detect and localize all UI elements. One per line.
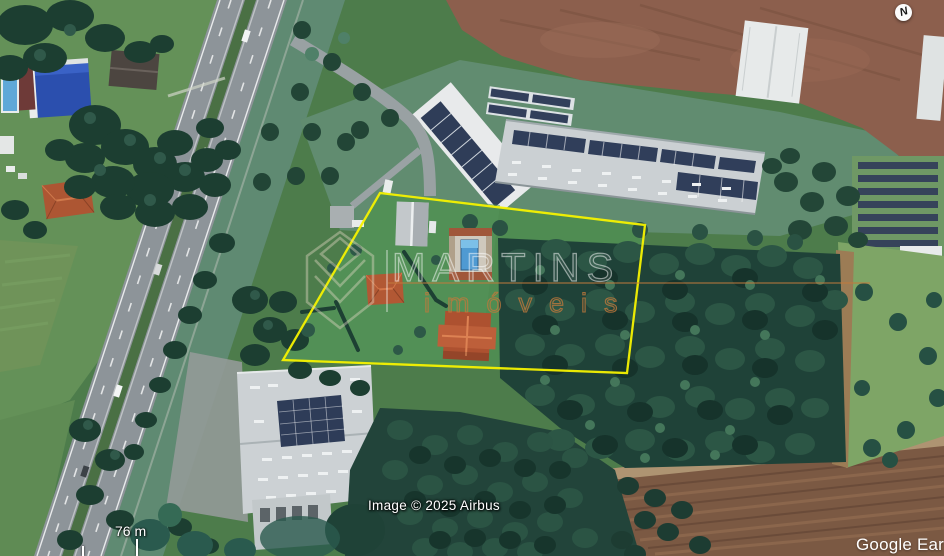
compass-icon[interactable]: N [895, 4, 912, 21]
scale-tick-left [82, 546, 84, 556]
compass-north-label: N [898, 6, 909, 19]
google-earth-logo: Google Ear [856, 535, 944, 555]
map-canvas[interactable]: MARTINS imóveis N 76 m Image © 2025 Airb… [0, 0, 944, 556]
scale-tick-mid [136, 539, 138, 556]
satellite-imagery [0, 0, 944, 556]
imagery-attribution: Image © 2025 Airbus [368, 498, 500, 513]
scale-label: 76 m [115, 523, 146, 539]
